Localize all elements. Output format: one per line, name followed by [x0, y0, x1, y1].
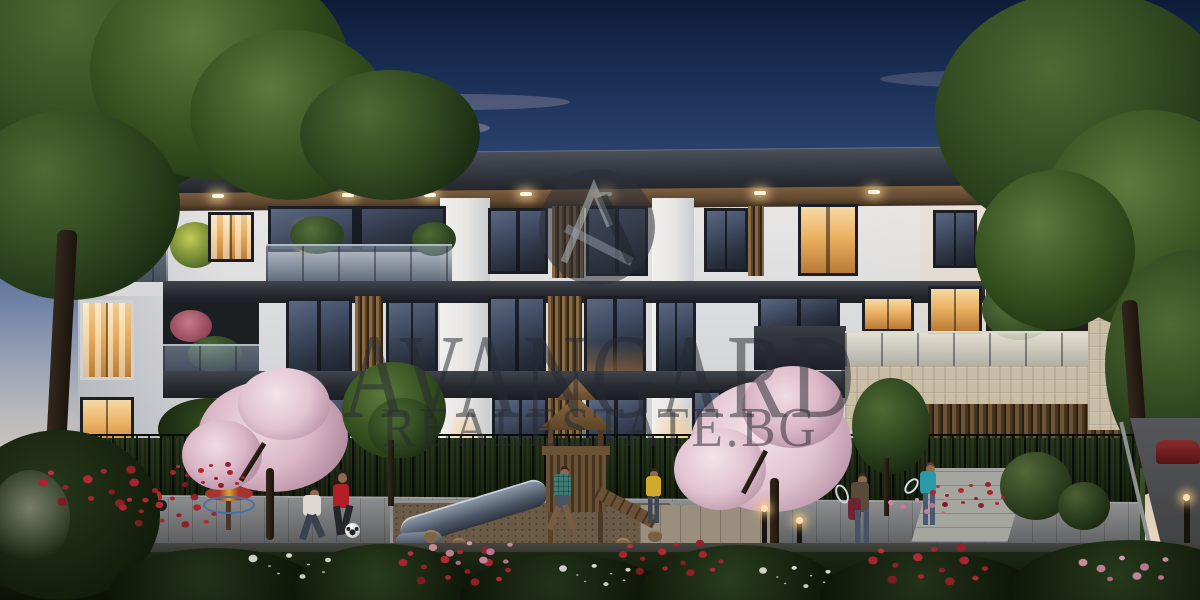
balcony-door: [758, 296, 840, 330]
topiary-ball: [1058, 482, 1110, 530]
yellow-boy-legs: [648, 496, 659, 523]
yellow-boy-shirt: [646, 476, 661, 497]
flower-cluster: [559, 565, 567, 572]
badminton-girl2-legs: [923, 493, 935, 525]
dusk-building-rendering: Garden View: [0, 0, 1200, 600]
play-tower-platform: [542, 446, 610, 455]
tree-canopy-right: [975, 170, 1135, 330]
tree-canopy-left: [300, 70, 480, 200]
flower-cluster: [759, 567, 767, 574]
flower-cluster: [1079, 559, 1088, 567]
flower-cluster: [429, 544, 437, 551]
bollard-glow: [1183, 494, 1190, 501]
green-tree: [852, 378, 930, 474]
soffit-downlight: [212, 194, 224, 198]
blossom-tree: [742, 366, 844, 448]
green-tree: [368, 398, 438, 458]
football: [345, 523, 360, 538]
carousel-ring: [203, 496, 255, 514]
football-boy-body: [303, 495, 321, 516]
bollard-light: [1184, 498, 1190, 548]
flower-cluster: [119, 504, 127, 511]
balcony-glass-railing: [266, 244, 452, 284]
flower-cluster: [38, 479, 48, 487]
lit-window: [928, 286, 982, 334]
flower-cluster: [619, 551, 627, 558]
tree-stump-seat: [424, 530, 438, 543]
lit-window: [798, 204, 858, 276]
window: [933, 210, 977, 268]
football-girl-head: [338, 473, 347, 483]
flower-cluster: [930, 490, 936, 495]
soffit-downlight: [868, 190, 880, 194]
tree-stump-seat: [648, 530, 662, 542]
bollard-glow: [796, 517, 803, 524]
soffit-downlight: [754, 191, 766, 195]
blossom-tree: [182, 420, 262, 490]
flower-cluster: [170, 470, 176, 475]
bollard-glow: [761, 505, 768, 512]
running-boy-shirt: [553, 474, 571, 497]
parked-car: [1156, 440, 1200, 464]
wood-slat-panel: [748, 206, 764, 276]
lit-window: [862, 296, 914, 332]
lit-window: [80, 300, 134, 380]
blossom-tree: [238, 368, 330, 440]
green-tree-trunk: [884, 458, 889, 516]
window: [488, 296, 546, 374]
blossom-tree-trunk: [266, 468, 274, 540]
flower-cluster: [249, 555, 258, 563]
avangard-logo-watermark-icon: [536, 166, 658, 288]
window: [656, 300, 696, 374]
window: [704, 208, 748, 272]
window: [286, 298, 352, 376]
flower-cluster: [868, 557, 878, 565]
green-tree-trunk: [388, 440, 394, 506]
lit-window: [208, 212, 254, 262]
bollard-light: [762, 508, 767, 548]
flower-cluster: [399, 559, 408, 567]
soffit-downlight: [520, 192, 532, 196]
flower-cluster: [888, 500, 894, 505]
dark-balcony: [754, 326, 846, 370]
window: [584, 296, 646, 374]
